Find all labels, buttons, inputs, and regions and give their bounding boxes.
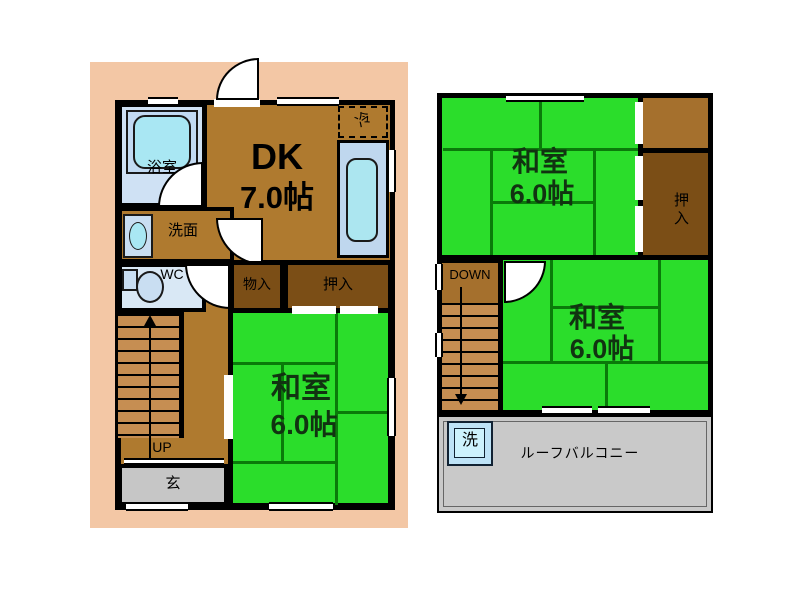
window xyxy=(435,264,443,290)
tatami-line xyxy=(605,364,608,411)
room-storage-2f xyxy=(638,93,713,153)
window xyxy=(277,97,339,106)
window xyxy=(542,406,592,415)
washitsu-2f-bottom-label: 和室 xyxy=(537,303,657,332)
sink-icon xyxy=(346,158,378,242)
stair-arrow-line xyxy=(149,324,151,458)
tatami-line xyxy=(539,98,542,150)
window xyxy=(148,97,178,106)
dk-label: DK xyxy=(212,138,342,176)
sliding-door-gap xyxy=(635,206,643,252)
up-label: UP xyxy=(140,440,184,455)
window xyxy=(435,333,443,357)
closet-2f-label: 押入 xyxy=(662,178,688,242)
doorway-gap xyxy=(214,99,260,107)
tatami-line xyxy=(233,362,337,365)
floorplan-image: 浴室 DK 7.0帖 冷 洗面 WC 物入 押入 UP 玄 和室 6.0帖 xyxy=(0,0,800,600)
washbasin-bowl xyxy=(129,222,147,250)
sliding-door-gap xyxy=(292,306,336,314)
sliding-door-gap xyxy=(224,375,233,439)
washitsu-2f-bottom-size: 6.0帖 xyxy=(538,335,666,363)
sliding-door-gap xyxy=(635,156,643,200)
stair-arrow-line xyxy=(460,287,462,397)
stair-arrow-down xyxy=(455,394,467,405)
closet-1f-label: 押入 xyxy=(284,277,392,293)
washroom-label: 洗面 xyxy=(150,223,216,239)
room-washitsu-1f xyxy=(228,308,393,508)
down-label: DOWN xyxy=(441,268,499,282)
washitsu-2f-top-size: 6.0帖 xyxy=(478,180,606,208)
window xyxy=(598,406,650,415)
window xyxy=(387,150,396,192)
balcony-label: ルーフバルコニー xyxy=(500,446,660,461)
stairs-down xyxy=(442,303,498,410)
washitsu-1f-size: 6.0帖 xyxy=(240,410,368,439)
tatami-line xyxy=(233,461,337,464)
stair-arrow-up xyxy=(144,315,156,326)
window xyxy=(387,378,396,436)
stairs-up xyxy=(118,312,184,438)
sliding-door-gap xyxy=(340,306,378,314)
washitsu-2f-top-label: 和室 xyxy=(480,147,600,176)
storage-label: 物入 xyxy=(230,277,284,292)
entrance-label: 玄 xyxy=(118,476,228,492)
sliding-door-gap xyxy=(635,102,643,144)
window xyxy=(506,94,584,102)
washitsu-1f-label: 和室 xyxy=(240,373,362,405)
window xyxy=(269,502,333,511)
washer-label: 洗 xyxy=(447,433,493,450)
entry-sliding-door xyxy=(126,502,188,511)
